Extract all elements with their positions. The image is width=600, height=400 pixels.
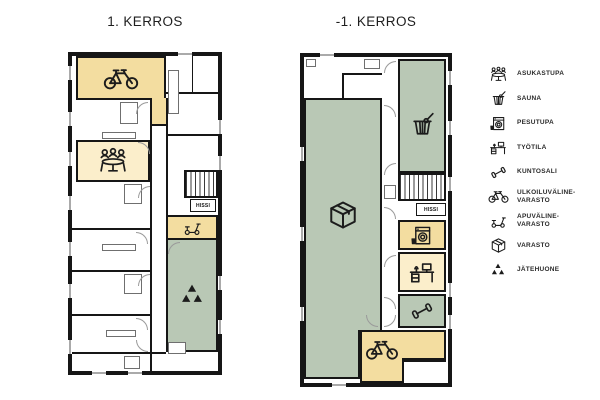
legend-label: ULKOILUVÄLINE- VARASTO bbox=[517, 189, 575, 205]
room-gym bbox=[398, 294, 446, 328]
bathroom bbox=[168, 342, 186, 354]
residents-lounge-icon bbox=[97, 147, 129, 175]
window-marker bbox=[68, 196, 72, 210]
room-sauna bbox=[398, 59, 446, 173]
kitchen-counter bbox=[102, 132, 136, 139]
unassigned-space bbox=[402, 360, 446, 383]
legend-label: KUNTOSALI bbox=[517, 168, 557, 176]
window-marker bbox=[320, 53, 334, 57]
window-marker bbox=[300, 307, 304, 321]
sauna-icon bbox=[409, 111, 436, 138]
legend-label: SAUNA bbox=[517, 95, 541, 103]
stairs bbox=[184, 170, 218, 198]
legend-item: KUNTOSALI bbox=[487, 160, 599, 185]
interior-wall bbox=[342, 73, 344, 98]
window-marker bbox=[448, 121, 452, 135]
bicycle-icon bbox=[103, 66, 139, 91]
room-storage bbox=[304, 98, 382, 330]
recycling-icon bbox=[179, 282, 205, 308]
legend: ASUKASTUPA SAUNA PESUTUPA TYÖTILA KUNTOS… bbox=[487, 62, 599, 283]
legend-item: JÄTEHUONE bbox=[487, 258, 599, 283]
room-outdoor-equipment-storage bbox=[360, 330, 402, 383]
interior-wall bbox=[72, 228, 150, 230]
window-marker bbox=[218, 320, 222, 334]
sauna-icon bbox=[487, 90, 509, 107]
floor-1-plan: HISSI bbox=[68, 52, 222, 375]
bathroom bbox=[384, 185, 396, 199]
legend-label: VARASTO bbox=[517, 242, 550, 250]
interior-wall bbox=[342, 73, 382, 75]
legend-label: APUVÄLINE- VARASTO bbox=[517, 213, 559, 229]
fixture bbox=[364, 59, 380, 69]
washing-machine-icon bbox=[487, 115, 509, 132]
window-marker bbox=[68, 242, 72, 256]
fixture bbox=[306, 59, 316, 67]
kitchen-counter bbox=[106, 330, 136, 337]
bicycle-icon bbox=[487, 189, 509, 204]
corridor-wall bbox=[150, 100, 152, 371]
cabinet-column bbox=[168, 70, 179, 114]
window-marker bbox=[178, 52, 192, 56]
floor-minus1-plan: HISSI bbox=[300, 53, 452, 387]
door-arc bbox=[136, 318, 148, 330]
mobility-aid-icon bbox=[487, 214, 509, 229]
window-marker bbox=[218, 276, 222, 290]
corridor-wall bbox=[166, 126, 168, 215]
residents-lounge-icon bbox=[487, 66, 509, 83]
legend-item: TYÖTILA bbox=[487, 136, 599, 161]
legend-label: PESUTUPA bbox=[517, 119, 554, 127]
window-marker bbox=[448, 315, 452, 329]
door-arc bbox=[136, 232, 148, 244]
door-arc bbox=[384, 163, 396, 175]
recycling-icon bbox=[487, 262, 509, 278]
interior-wall bbox=[72, 314, 150, 316]
legend-label: JÄTEHUONE bbox=[517, 266, 559, 274]
desk-icon bbox=[408, 259, 436, 285]
window-marker bbox=[68, 112, 72, 126]
dumbbell-icon bbox=[410, 299, 434, 323]
window-marker bbox=[218, 120, 222, 134]
legend-item: APUVÄLINE- VARASTO bbox=[487, 209, 599, 234]
legend-item: VARASTO bbox=[487, 234, 599, 259]
room-outdoor-equipment-storage bbox=[76, 56, 166, 100]
elevator-label: HISSI bbox=[416, 203, 446, 216]
floorplan-poster: 1. KERROS -1. KERROS HISSI bbox=[0, 0, 600, 400]
door-arc bbox=[384, 105, 396, 117]
bathroom bbox=[124, 356, 140, 369]
window-marker bbox=[68, 284, 72, 298]
room-mobility-aid-storage bbox=[166, 215, 218, 240]
legend-item: ULKOILUVÄLINE- VARASTO bbox=[487, 185, 599, 210]
stairs bbox=[398, 173, 446, 201]
legend-label: ASUKASTUPA bbox=[517, 70, 564, 78]
window-marker bbox=[448, 71, 452, 85]
window-marker bbox=[218, 156, 222, 170]
room-outdoor-equipment-storage-ext bbox=[150, 98, 168, 126]
window-marker bbox=[448, 283, 452, 297]
window-marker bbox=[300, 227, 304, 241]
desk-icon bbox=[487, 139, 509, 156]
door-arc bbox=[136, 340, 148, 352]
window-marker bbox=[448, 177, 452, 191]
door-arc bbox=[384, 255, 396, 267]
window-marker bbox=[92, 371, 106, 375]
room-laundry bbox=[398, 220, 446, 250]
elevator-label: HISSI bbox=[190, 199, 216, 212]
window-marker bbox=[68, 66, 72, 80]
mobility-aid-icon bbox=[183, 220, 202, 236]
interior-wall bbox=[166, 134, 218, 136]
interior-wall bbox=[192, 56, 193, 92]
storage-box-icon bbox=[327, 199, 359, 231]
dumbbell-icon bbox=[487, 164, 509, 181]
room-workspace bbox=[398, 252, 446, 292]
bicycle-icon bbox=[365, 338, 399, 361]
window-marker bbox=[332, 383, 346, 387]
legend-item: PESUTUPA bbox=[487, 111, 599, 136]
window-marker bbox=[300, 147, 304, 161]
legend-item: ASUKASTUPA bbox=[487, 62, 599, 87]
door-arc bbox=[384, 207, 396, 219]
floor-minus1-title: -1. KERROS bbox=[300, 14, 452, 29]
window-marker bbox=[68, 340, 72, 354]
door-arc bbox=[384, 61, 396, 73]
storage-box-icon bbox=[487, 237, 509, 254]
room-waste bbox=[166, 238, 218, 352]
window-marker bbox=[128, 371, 142, 375]
legend-item: SAUNA bbox=[487, 87, 599, 112]
floor-1-title: 1. KERROS bbox=[68, 14, 222, 29]
kitchen-counter bbox=[102, 244, 136, 251]
window-marker bbox=[68, 152, 72, 166]
legend-label: TYÖTILA bbox=[517, 144, 547, 152]
interior-wall bbox=[72, 270, 150, 272]
door-arc bbox=[384, 315, 396, 327]
room-storage-ext bbox=[304, 330, 360, 379]
door-arc bbox=[384, 297, 396, 309]
washing-machine-icon bbox=[411, 224, 434, 247]
